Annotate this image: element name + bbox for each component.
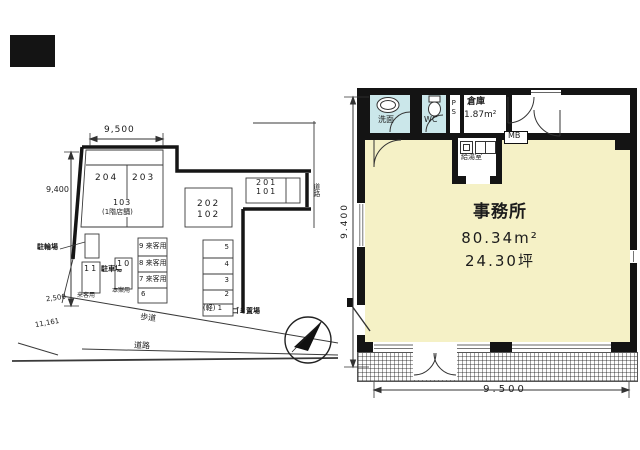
parking-no11: 11	[84, 265, 98, 274]
wc-label: WC	[424, 116, 438, 125]
parking-rowB-2: 2	[205, 291, 229, 299]
office-area-m2-label: 80.34m²	[440, 230, 560, 247]
parking-rowB-1: (軽) 1	[203, 305, 222, 313]
road-right-label: 道路	[312, 183, 320, 209]
parking-no10-use: 本案用	[112, 288, 130, 295]
washroom-label: 洗面	[378, 116, 394, 125]
unit-103: 103	[113, 199, 131, 208]
office-name-label: 事務所	[440, 203, 560, 222]
pipe-space-label: PS	[449, 99, 457, 131]
parking-rowA-6: 6	[141, 291, 145, 299]
plan-detail-drawing	[0, 0, 640, 450]
office-area-tsubo-label: 24.30坪	[440, 253, 560, 270]
kitchenette-label: 給湯室	[461, 154, 482, 162]
unit-102: 102	[197, 211, 220, 221]
plan-dim-height-label: 9.400	[341, 191, 351, 251]
site-dim-left-label: 9,400	[46, 186, 69, 195]
unit-202: 202	[197, 200, 220, 210]
exterior-door-hinge	[347, 298, 353, 307]
site-dim-top-label: 9,500	[104, 126, 135, 136]
parking-rowB-5: 5	[205, 244, 229, 252]
floorplan-document: 9,500 9,400 204 203 103 (1階店舗) 202 102 2…	[0, 0, 640, 450]
parking-rowA-8: 8 来客用	[139, 260, 167, 268]
parking-rowB-4: 4	[205, 261, 229, 269]
unit-204: 204	[95, 174, 118, 184]
parking-rowB-3: 3	[205, 277, 229, 285]
unit-101: 101	[256, 188, 277, 197]
parking-no11-use: 来客用	[77, 293, 95, 300]
unit-103-note: (1階店舗)	[102, 209, 133, 217]
parking-no10: 10	[117, 260, 131, 269]
storage-area-label: 1.87m²	[464, 111, 496, 121]
storage-label: 倉庫	[467, 98, 485, 108]
parking-rowA-7: 7 来客用	[139, 276, 167, 284]
garbage-label: ゴミ置場	[232, 308, 260, 316]
parking-rowA-9: 9 来客用	[139, 243, 167, 251]
road-bottom-label: 道路	[134, 342, 150, 352]
plan-dim-width-label: 9.500	[460, 384, 550, 395]
unit-203: 203	[132, 174, 155, 184]
meter-box-label: MB	[508, 132, 520, 141]
bicycle-parking-label: 駐輪場	[37, 244, 58, 252]
sanitary-fixtures	[377, 96, 441, 116]
